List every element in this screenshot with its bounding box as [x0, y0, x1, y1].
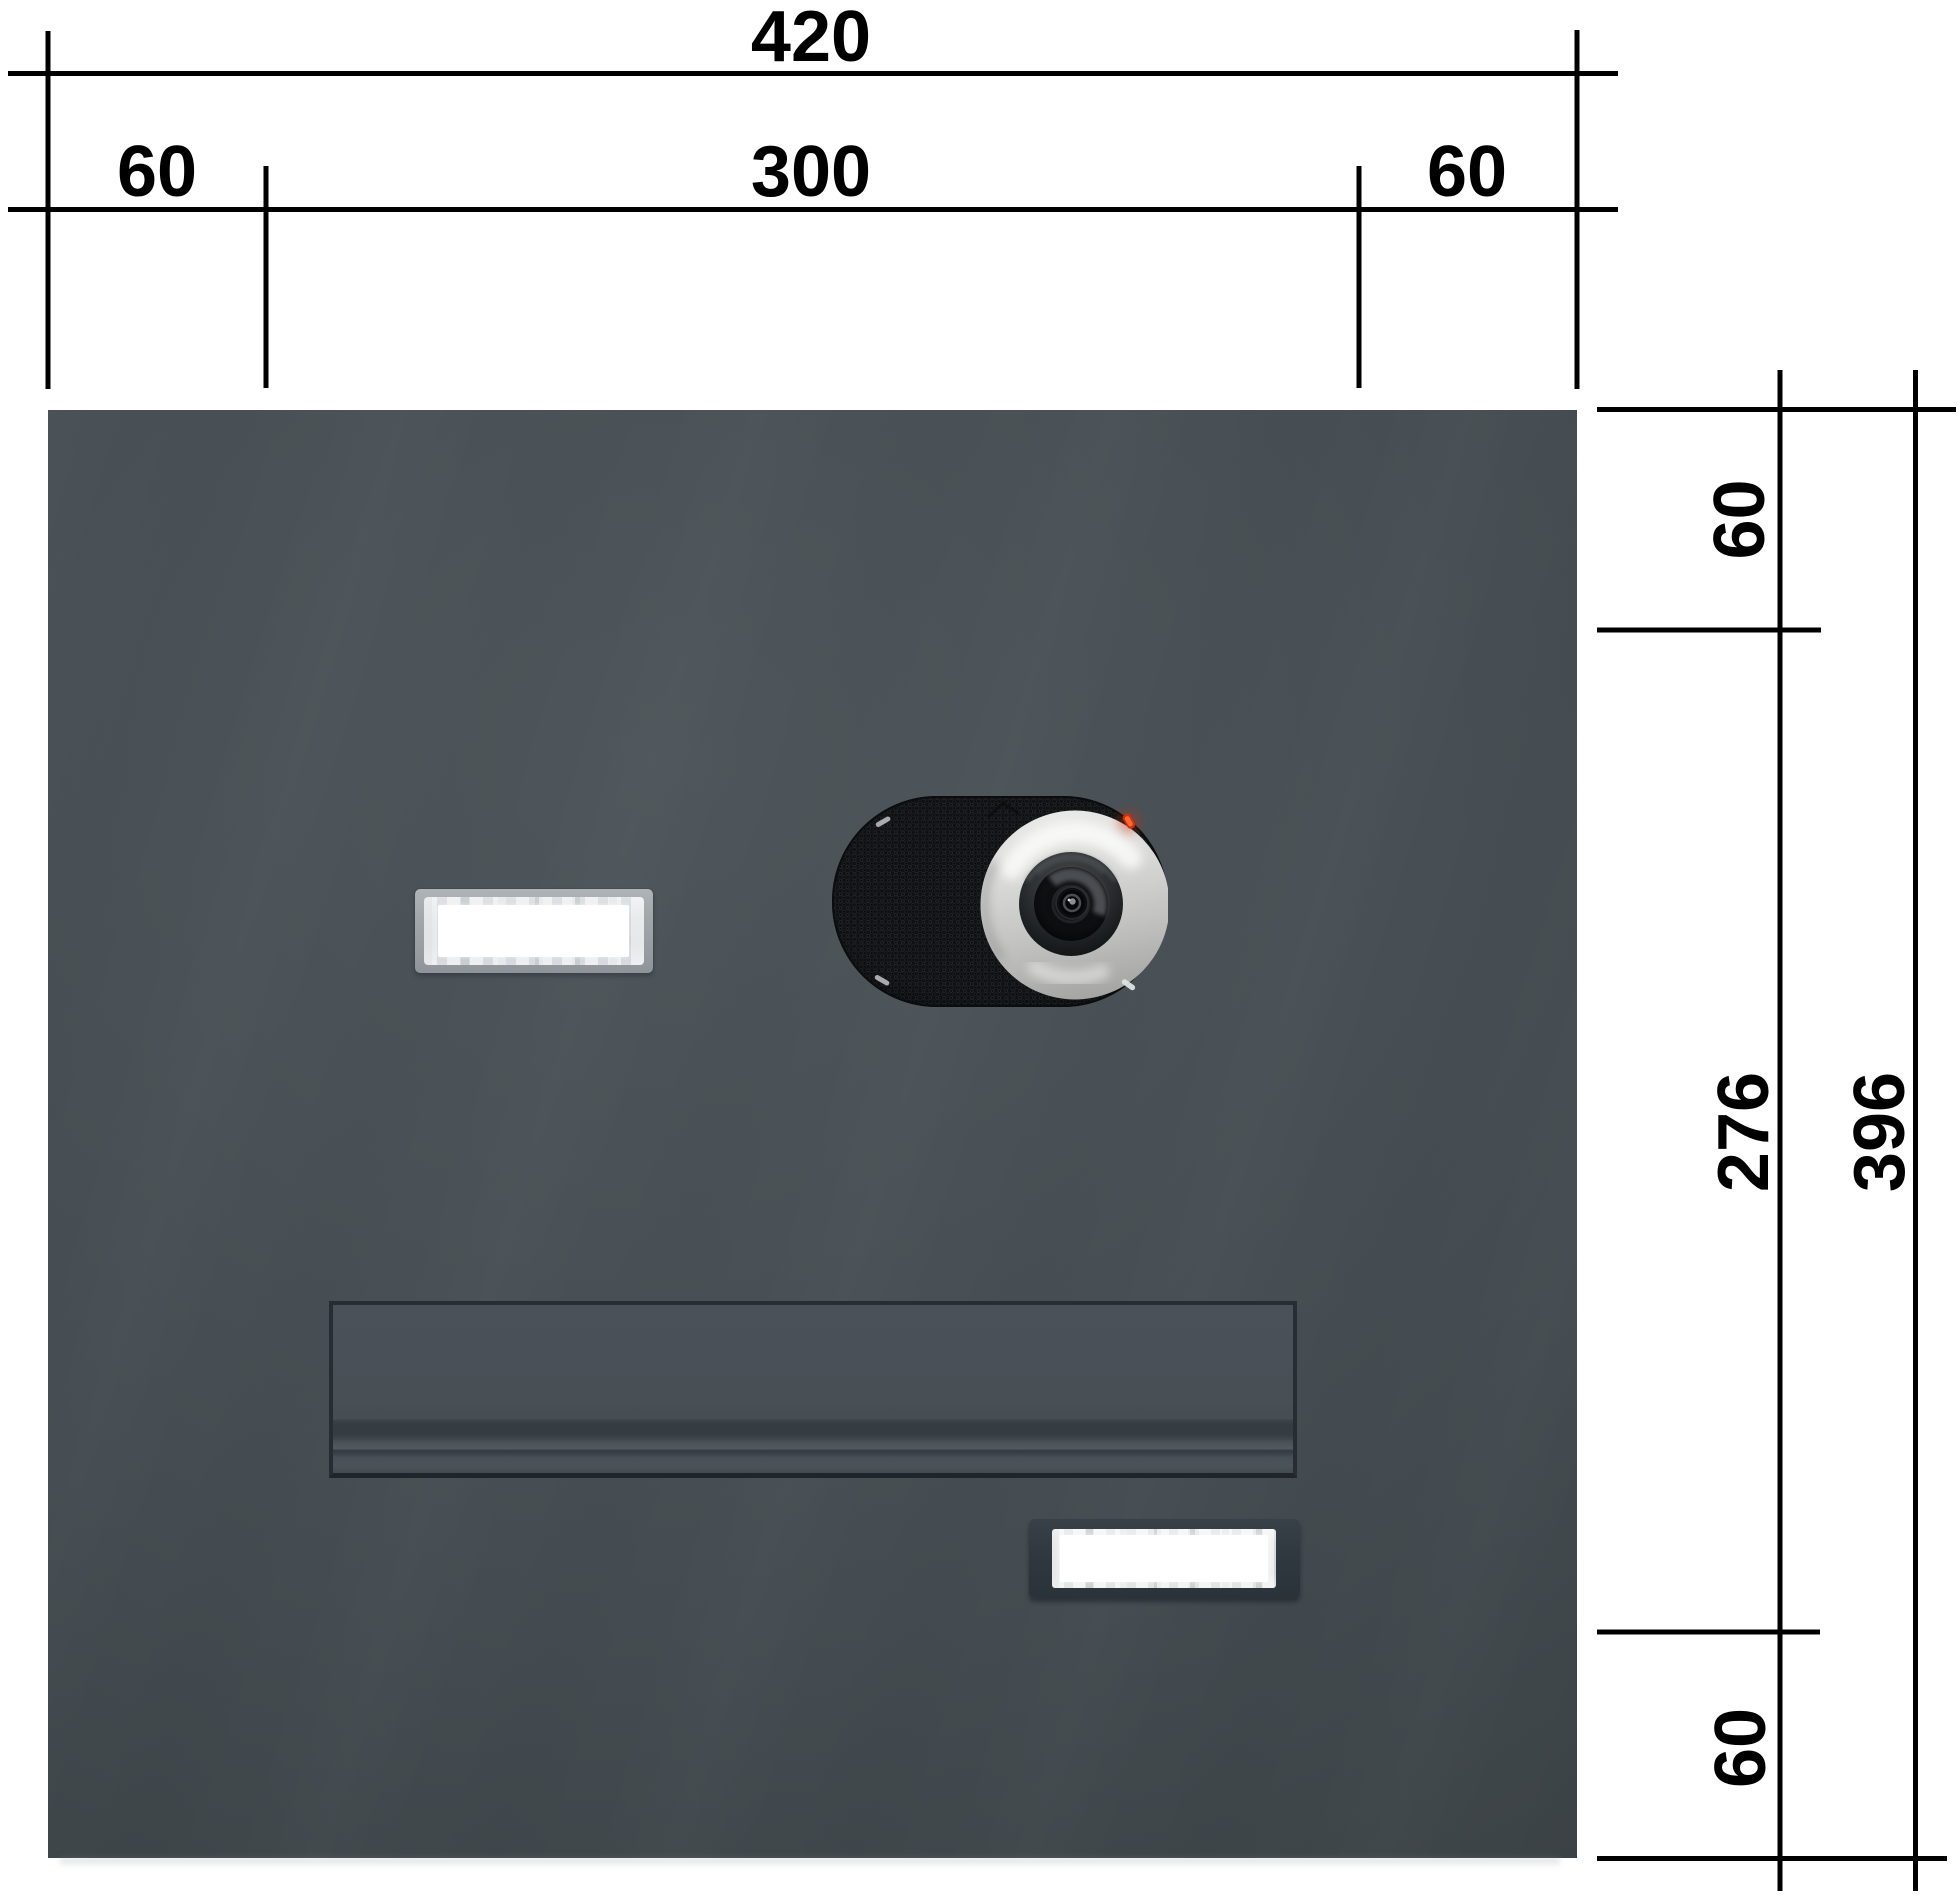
svg-text:60: 60 [1701, 1708, 1781, 1788]
svg-text:276: 276 [1704, 1072, 1784, 1192]
svg-text:60: 60 [1700, 479, 1780, 559]
svg-text:60: 60 [1427, 132, 1507, 212]
svg-text:300: 300 [751, 132, 871, 212]
svg-text:60: 60 [117, 132, 197, 212]
svg-text:396: 396 [1840, 1072, 1920, 1192]
svg-text:420: 420 [751, 0, 871, 77]
